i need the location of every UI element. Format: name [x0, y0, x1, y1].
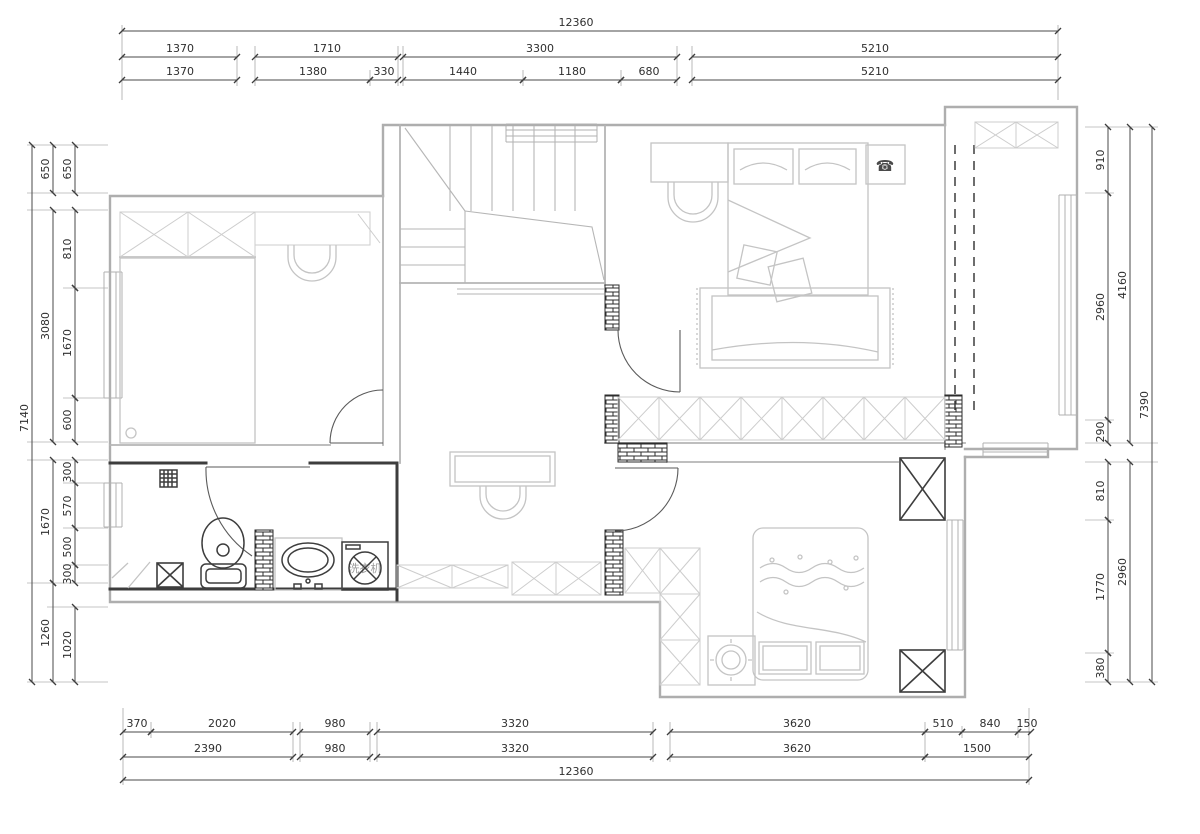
dim-top: 5210 [861, 42, 889, 55]
toilet [201, 518, 246, 588]
bedroom2-furniture: ☎ [651, 143, 905, 368]
stair-break-line [465, 211, 604, 280]
window-stair-top [506, 124, 597, 142]
dim-right: 1770 [1094, 573, 1107, 601]
dim-bottom: 510 [933, 717, 954, 730]
bedroom1-furniture [120, 245, 336, 443]
door-bedroom3 [615, 468, 678, 531]
dim-bottom: 150 [1017, 717, 1038, 730]
cabinet-hall-c [625, 548, 660, 593]
dim-bottom: 980 [325, 717, 346, 730]
washing-machine: 洗衣机 [342, 542, 388, 590]
window-bedroom1-left [104, 272, 122, 398]
pillow [734, 149, 793, 184]
dim-top: 3300 [526, 42, 554, 55]
nightstand-bedroom3 [708, 636, 755, 685]
dim-right: 810 [1094, 481, 1107, 502]
dim-left: 1260 [39, 619, 52, 647]
door-bedroom2 [618, 330, 680, 392]
closet-bedroom1 [120, 212, 380, 257]
dim-bottom: 840 [980, 717, 1001, 730]
chair-bedroom1 [288, 245, 336, 281]
dim-left: 1020 [61, 631, 74, 659]
dim-left: 300 [61, 564, 74, 585]
dim-left: 600 [61, 410, 74, 431]
balcony-dashed-lines [955, 145, 974, 415]
dim-bottom: 3320 [501, 742, 529, 755]
dim-bottom: 2390 [194, 742, 222, 755]
window-bedroom3-right [947, 520, 963, 650]
dim-bottom: 370 [127, 717, 148, 730]
hall-furniture [450, 452, 555, 519]
dim-top: 680 [639, 65, 660, 78]
floor-drain [160, 470, 177, 487]
dim-left: 300 [61, 462, 74, 483]
hall-desk [450, 452, 555, 486]
wardrobe-bedroom3 [660, 548, 700, 685]
sink-vanity [275, 538, 342, 590]
dim-top: 1370 [166, 65, 194, 78]
dim-top: 1380 [299, 65, 327, 78]
bed1 [120, 258, 255, 443]
dim-top: 1440 [449, 65, 477, 78]
dim-bottom: 2020 [208, 717, 236, 730]
brick-pier [255, 530, 273, 590]
dim-left: 3080 [39, 312, 52, 340]
brick-pier [945, 395, 962, 447]
balcony-outline [945, 107, 1077, 449]
wardrobes [120, 122, 1058, 692]
shower-corner [112, 562, 150, 588]
window-balcony-right [1059, 195, 1077, 415]
brick-pier [605, 530, 623, 595]
dim-bottom: 980 [325, 742, 346, 755]
floor-plan-drawing: 12360 1370 1710 3300 5210 1370 1380 330 … [0, 0, 1200, 834]
extension-lines-top [122, 25, 1058, 100]
dim-left: 650 [39, 159, 52, 180]
chair-bedroom2 [668, 182, 718, 222]
cabinet-hall-a [397, 565, 508, 588]
window-bath-left [104, 483, 122, 527]
stairs [400, 126, 604, 283]
blanket-fold [757, 612, 866, 642]
dim-top-overall: 12360 [559, 16, 594, 29]
dim-left: 1670 [61, 329, 74, 357]
pillow [799, 149, 856, 184]
brick-pier [605, 285, 619, 330]
dim-left: 650 [61, 159, 74, 180]
dim-right: 380 [1094, 658, 1107, 679]
dimensions-top: 12360 1370 1710 3300 5210 1370 1380 330 … [122, 16, 1058, 100]
dim-top: 1370 [166, 42, 194, 55]
dim-right: 290 [1094, 422, 1107, 443]
dimensions-right: 910 2960 290 810 1770 380 4160 2960 7390 [1085, 127, 1158, 682]
pillow [759, 642, 811, 674]
wardrobe-strip-middle [618, 397, 945, 440]
bathroom-fixtures: 洗衣机 [112, 470, 388, 590]
desk-bedroom2 [651, 143, 728, 182]
dim-bottom: 1500 [963, 742, 991, 755]
chair-hall [480, 486, 526, 519]
dim-top: 330 [374, 65, 395, 78]
windows [104, 124, 1077, 650]
dim-bottom: 3620 [783, 742, 811, 755]
dim-left-overall: 7140 [18, 404, 31, 432]
cabinet-hall-b [512, 562, 601, 595]
bed1-knob [126, 428, 136, 438]
bedroom3-furniture [708, 528, 868, 685]
dim-left: 810 [61, 239, 74, 260]
brick-pier [618, 443, 667, 462]
pillow [816, 642, 864, 674]
rug [697, 288, 893, 368]
dim-bottom-overall: 12360 [559, 765, 594, 778]
dim-top: 5210 [861, 65, 889, 78]
dim-right: 2960 [1116, 558, 1129, 586]
dimensions-left: 7140 650 3080 1670 1260 650 810 1670 600… [18, 145, 108, 682]
dim-right: 4160 [1116, 271, 1129, 299]
cabinet-balcony [975, 122, 1058, 148]
door-bedroom1 [330, 390, 383, 443]
dim-right-overall: 7390 [1138, 391, 1151, 419]
floor-plan-page: 12360 1370 1710 3300 5210 1370 1380 330 … [0, 0, 1200, 834]
dim-left: 570 [61, 496, 74, 517]
dim-right: 910 [1094, 150, 1107, 171]
dim-top: 1710 [313, 42, 341, 55]
dim-bottom: 3620 [783, 717, 811, 730]
dim-bottom: 3320 [501, 717, 529, 730]
brick-pier [605, 395, 619, 443]
dimensions-bottom: 370 2020 980 3320 3620 510 840 150 2390 … [123, 708, 1038, 785]
dim-left: 1670 [39, 508, 52, 536]
blanket-waves [760, 564, 864, 587]
phone-icon: ☎ [876, 157, 895, 175]
dim-top: 1180 [558, 65, 586, 78]
dim-left: 500 [61, 537, 74, 558]
dim-right: 2960 [1094, 293, 1107, 321]
